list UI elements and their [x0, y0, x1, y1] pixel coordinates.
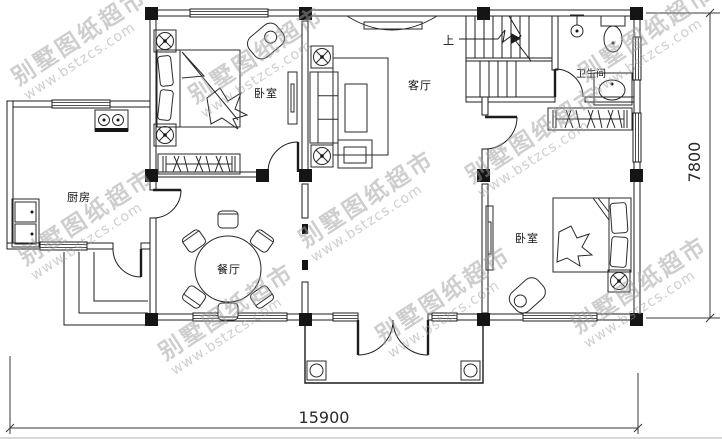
bedroom-right-door: [485, 117, 517, 149]
main-entry-double-door: [358, 320, 428, 355]
lounge-chair-left: [244, 19, 288, 62]
window: [40, 242, 87, 250]
side-entry-door: [113, 249, 141, 277]
door-layer: [113, 69, 583, 355]
window: [52, 100, 110, 108]
stove: [95, 110, 128, 132]
fan-icon: [311, 46, 333, 68]
fan-icon: [608, 270, 630, 292]
sofa-set: [310, 58, 388, 168]
window: [523, 313, 597, 321]
tv-wall-living: [347, 16, 437, 30]
kitchen-door: [153, 190, 181, 218]
outdoor-steps: [64, 252, 148, 325]
bed-left: [157, 50, 247, 129]
stairs-up-arrow: [459, 30, 521, 44]
porch-column: [461, 361, 480, 380]
dimension-depth: 7800: [685, 142, 704, 183]
lounge-chair-right: [506, 274, 549, 317]
toilet: [601, 16, 625, 52]
dining-chair: [249, 284, 275, 309]
label-kitchen: 厨房: [67, 191, 91, 204]
dining-chair: [249, 228, 275, 253]
porch-column: [307, 361, 326, 380]
floor-plan-page: 15900 7800 卧室 客厅 卫生间 厨房 餐厅 卧室 上 别墅图纸超市ww…: [0, 0, 722, 439]
label-bedroom-right: 卧室: [515, 231, 539, 245]
column-layer: [145, 7, 643, 326]
fan-icon: [154, 30, 176, 52]
bedroom-left-door: [268, 142, 298, 172]
label-stairs-up: 上: [443, 34, 455, 47]
window: [633, 113, 641, 162]
window: [333, 313, 358, 321]
dimension-width: 15900: [299, 408, 350, 427]
window: [432, 313, 457, 321]
label-bathroom: 卫生间: [576, 67, 606, 80]
kitchen-sink: [12, 199, 39, 247]
floor-plan-drawing: 15900 7800 卧室 客厅 卫生间 厨房 餐厅 卧室 上: [0, 0, 722, 439]
wardrobe-right: [548, 108, 632, 130]
dining-chair: [218, 211, 238, 228]
label-dining-room: 餐厅: [217, 262, 241, 276]
dining-chair: [181, 284, 207, 309]
tv-cabinet-left: [288, 72, 297, 124]
porch: [305, 326, 483, 383]
dining-chair: [181, 228, 207, 253]
window: [193, 313, 287, 321]
fan-icon: [311, 145, 333, 167]
label-living-room: 客厅: [408, 78, 432, 92]
shower: [570, 15, 584, 37]
window: [633, 37, 641, 80]
bed-right: [553, 198, 631, 272]
label-bedroom-left: 卧室: [254, 86, 278, 100]
window: [190, 9, 268, 17]
window-layer: [40, 9, 641, 321]
dining-chair: [218, 303, 238, 320]
wardrobe-left: [158, 154, 240, 174]
staircase: [459, 16, 552, 97]
